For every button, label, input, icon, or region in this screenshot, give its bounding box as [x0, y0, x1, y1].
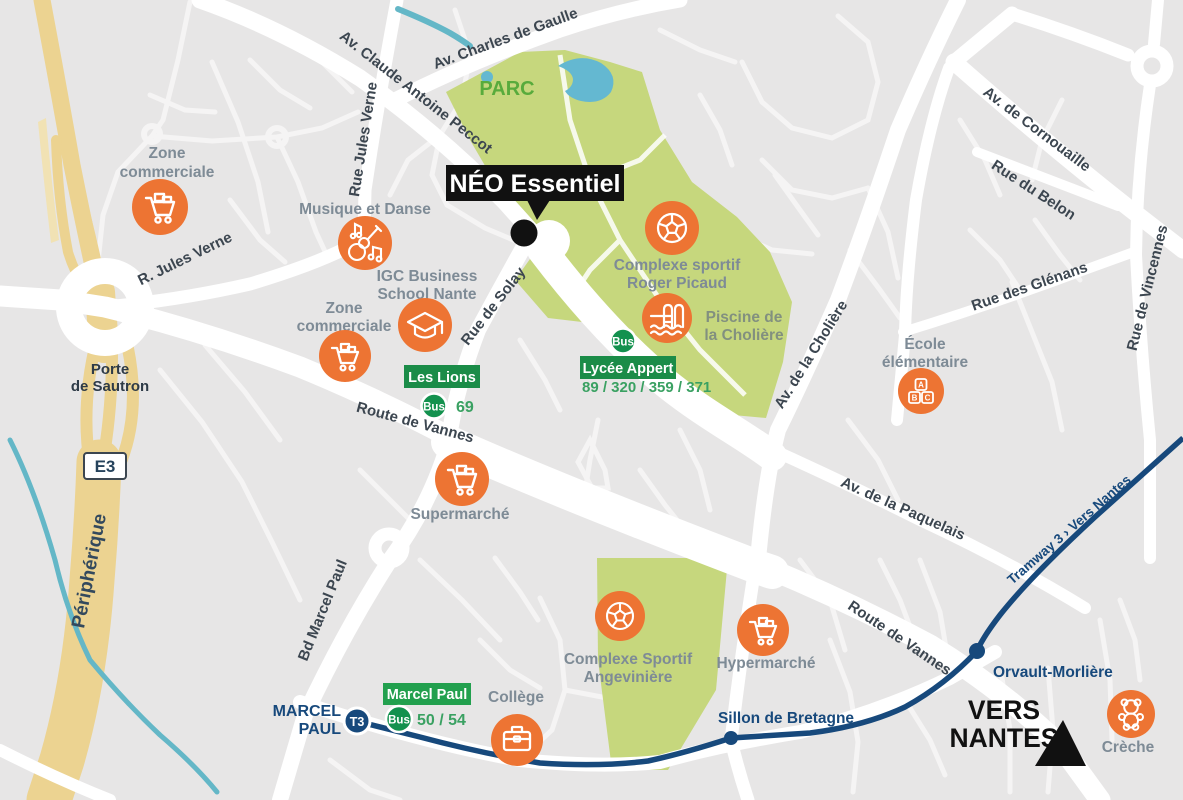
svg-text:PAUL: PAUL	[299, 721, 342, 738]
svg-text:C: C	[925, 394, 931, 403]
svg-text:Porte: Porte	[91, 361, 129, 378]
svg-text:Les Lions: Les Lions	[408, 370, 476, 386]
svg-text:la Cholière: la Cholière	[704, 327, 784, 344]
svg-text:commerciale: commerciale	[120, 164, 215, 181]
svg-text:Sillon de Bretagne: Sillon de Bretagne	[718, 710, 854, 727]
svg-text:Supermarché: Supermarché	[410, 506, 509, 523]
svg-text:NÉO Essentiel: NÉO Essentiel	[450, 169, 621, 198]
svg-text:Orvault-Morlière: Orvault-Morlière	[993, 664, 1113, 681]
svg-text:NANTES: NANTES	[950, 723, 1059, 753]
svg-text:T3: T3	[350, 715, 365, 729]
svg-text:E3: E3	[95, 457, 116, 476]
svg-text:Zone: Zone	[148, 145, 185, 162]
svg-text:Collège: Collège	[488, 689, 544, 706]
svg-text:de Sautron: de Sautron	[71, 378, 149, 395]
svg-text:Complexe sportif: Complexe sportif	[614, 257, 741, 274]
svg-text:Angevinière: Angevinière	[584, 669, 673, 686]
svg-text:Roger Picaud: Roger Picaud	[627, 275, 727, 292]
svg-text:Hypermarché: Hypermarché	[716, 655, 815, 672]
svg-text:IGC Business: IGC Business	[377, 268, 478, 285]
svg-text:A: A	[918, 381, 924, 390]
svg-text:PARC: PARC	[479, 78, 534, 100]
svg-text:Marcel Paul: Marcel Paul	[387, 687, 468, 703]
svg-text:Bus: Bus	[388, 715, 410, 727]
svg-text:VERS: VERS	[968, 695, 1040, 725]
svg-text:69: 69	[456, 399, 474, 416]
svg-text:Crèche: Crèche	[1102, 739, 1155, 756]
svg-text:50 / 54: 50 / 54	[417, 712, 466, 729]
svg-text:89 / 320 / 359 / 371: 89 / 320 / 359 / 371	[582, 379, 711, 396]
svg-text:Lycée Appert: Lycée Appert	[583, 361, 674, 377]
svg-text:École: École	[904, 336, 946, 353]
svg-text:B: B	[912, 394, 918, 403]
svg-text:Musique et Danse: Musique et Danse	[299, 201, 431, 218]
svg-text:Bus: Bus	[612, 337, 634, 349]
svg-text:Piscine de: Piscine de	[706, 309, 783, 326]
svg-text:Bus: Bus	[423, 402, 445, 414]
svg-text:Zone: Zone	[325, 300, 362, 317]
svg-text:Complexe Sportif: Complexe Sportif	[564, 651, 693, 668]
svg-text:MARCEL: MARCEL	[273, 703, 342, 720]
